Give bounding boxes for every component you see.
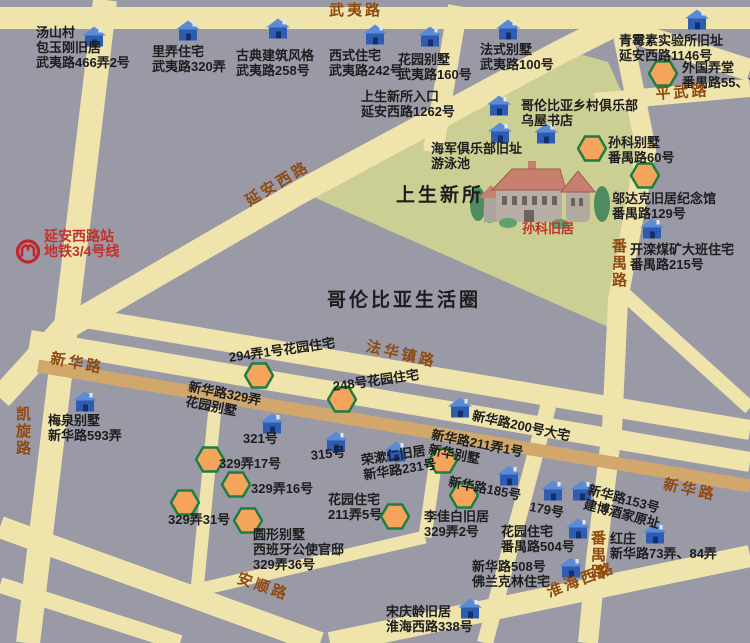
label-line: 乌屋书店	[521, 113, 638, 128]
label-line: 211弄5号	[328, 507, 382, 522]
hexagon-marker	[577, 135, 607, 167]
label-line: 花园住宅	[501, 524, 575, 539]
label-line: 孙科别墅	[608, 135, 674, 150]
road-wuyi-label: 武夷路	[329, 3, 383, 19]
label-line: 法式别墅	[480, 42, 554, 57]
house-icon	[448, 398, 472, 423]
poi-columbia-club: 哥伦比亚乡村俱乐部乌屋书店	[521, 98, 638, 128]
poi-329-16: 329弄16号	[251, 481, 313, 496]
label-line: 延安西路站	[44, 229, 119, 244]
label-line: 新华路508号	[472, 559, 550, 574]
poi-xishi: 西式住宅武夷路242号	[329, 48, 403, 78]
road-southeast-connector	[622, 292, 750, 408]
poi-lilong: 里弄住宅武夷路320弄	[152, 44, 226, 74]
hexagon-marker	[630, 162, 660, 194]
poi-321: 321号	[243, 431, 278, 446]
label-line: 凯旋路	[14, 406, 30, 457]
road-kaixuan-label: 凯旋路	[14, 406, 30, 457]
label-line: 游泳池	[431, 156, 522, 171]
poi-songqingling: 宋庆龄旧居淮海西路338号	[386, 604, 473, 634]
label-line: 武夷路100号	[480, 57, 554, 72]
label-line: 哥伦比亚乡村俱乐部	[521, 98, 638, 113]
label-line: 武夷路242号	[329, 63, 403, 78]
label-line: 新华路73弄、84弄	[610, 546, 717, 561]
poi-navy-club: 海军俱乐部旧址游泳池	[431, 141, 522, 171]
metro-logo-icon	[15, 239, 41, 270]
poi-508: 新华路508号佛兰克林住宅	[472, 559, 550, 589]
label-line: 外国弄堂	[682, 60, 750, 75]
road-panyu-north-label: 番禺路	[610, 238, 626, 289]
label-line: 武夷路258号	[236, 63, 314, 78]
house-icon	[176, 21, 200, 46]
label-line: 包玉刚旧居	[36, 40, 130, 55]
label-line: 武夷路160号	[398, 67, 472, 82]
label-line: 新华路593弄	[48, 428, 122, 443]
house-icon	[487, 96, 511, 121]
label-line: 329弄36号	[253, 557, 344, 572]
label-line: 329弄17号	[219, 456, 281, 471]
poi-fashi: 法式别墅武夷路100号	[480, 42, 554, 72]
poi-entrance: 上生新所入口延安西路1262号	[361, 89, 455, 119]
label-line: 番禺路	[610, 238, 626, 289]
area-title-shangsheng: 上生新所	[396, 185, 484, 206]
label-line: 329弄16号	[251, 481, 313, 496]
label-line: 延安西路1262号	[361, 104, 455, 119]
hexagon-marker	[221, 471, 251, 503]
label-line: 番禺路60号	[608, 150, 674, 165]
hexagon-marker	[244, 362, 274, 394]
area-title-columbia: 哥伦比亚生活圈	[327, 290, 481, 311]
label-line: 西班牙公使官邸	[253, 542, 344, 557]
label-line: 邬达克旧居纪念馆	[612, 191, 716, 206]
label-line: 海军俱乐部旧址	[431, 141, 522, 156]
poi-329-36: 圆形别墅西班牙公使官邸329弄36号	[253, 527, 344, 572]
poi-hongzhuang: 红庄新华路73弄、84弄	[610, 531, 717, 561]
house-icon	[640, 219, 664, 244]
label-line: 番禺路215号	[630, 257, 734, 272]
label-line: 武夷路320弄	[152, 59, 226, 74]
poi-kailuan: 开滦煤矿大班住宅番禺路215号	[630, 242, 734, 272]
hexagon-marker	[380, 503, 410, 535]
hand-drawn-map: 汤山村包玉刚旧居武夷路466弄2号里弄住宅武夷路320弄古典建筑风格武夷路258…	[0, 0, 750, 643]
label-line: 宋庆龄旧居	[386, 604, 473, 619]
poi-lijiabai: 李佳白旧居329弄2号	[424, 509, 489, 539]
poi-wudake: 邬达克旧居纪念馆番禺路129号	[612, 191, 716, 221]
label-line: 上生新所入口	[361, 89, 455, 104]
label-line: 哥伦比亚生活圈	[327, 290, 481, 311]
label-line: 花园别墅	[398, 52, 472, 67]
label-line: 番禺路504号	[501, 539, 575, 554]
label-line: 圆形别墅	[253, 527, 344, 542]
label-line: 上生新所	[396, 185, 484, 206]
house-icon	[266, 19, 290, 44]
label-line: 李佳白旧居	[424, 509, 489, 524]
label-line: 番禺路129号	[612, 206, 716, 221]
poi-qingmeisu: 青霉素实验所旧址延安西路1146号	[619, 33, 723, 63]
label-line: 青霉素实验所旧址	[619, 33, 723, 48]
poi-329-31: 329弄31号	[168, 512, 230, 527]
label-line: 汤山村	[36, 25, 130, 40]
poi-504: 花园住宅番禺路504号	[501, 524, 575, 554]
label-line: 329弄2号	[424, 524, 489, 539]
poi-211-5: 花园住宅211弄5号	[328, 492, 382, 522]
label-line: 梅泉别墅	[48, 413, 122, 428]
poi-huayuan-160: 花园别墅武夷路160号	[398, 52, 472, 82]
label-line: 西式住宅	[329, 48, 403, 63]
label-line: 淮海西路338号	[386, 619, 473, 634]
label-line: 佛兰克林住宅	[472, 574, 550, 589]
metro-station-label: 延安西路站地铁3/4号线	[44, 229, 119, 259]
label-line: 古典建筑风格	[236, 48, 314, 63]
label-line: 开滦煤矿大班住宅	[630, 242, 734, 257]
poi-sunke-villa: 孙科别墅番禺路60号	[608, 135, 674, 165]
house-icon	[685, 10, 709, 35]
label-line: 329弄31号	[168, 512, 230, 527]
label-line: 武夷路466弄2号	[36, 55, 130, 70]
label-line: 红庄	[610, 531, 717, 546]
poi-meiquan: 梅泉别墅新华路593弄	[48, 413, 122, 443]
label-line: 地铁3/4号线	[44, 244, 119, 259]
poi-gudian: 古典建筑风格武夷路258号	[236, 48, 314, 78]
house-icon	[496, 20, 520, 45]
poi-329-17: 329弄17号	[219, 456, 281, 471]
label-line: 孙科旧居	[522, 221, 574, 236]
poi-baoyugang: 汤山村包玉刚旧居武夷路466弄2号	[36, 25, 130, 70]
label-line: 花园住宅	[328, 492, 382, 507]
house-icon	[418, 27, 442, 52]
house-icon	[363, 25, 387, 50]
label-line: 321号	[243, 431, 278, 446]
label-line: 里弄住宅	[152, 44, 226, 59]
sunke-house-caption: 孙科旧居	[522, 221, 574, 236]
label-line: 武夷路	[329, 3, 383, 19]
